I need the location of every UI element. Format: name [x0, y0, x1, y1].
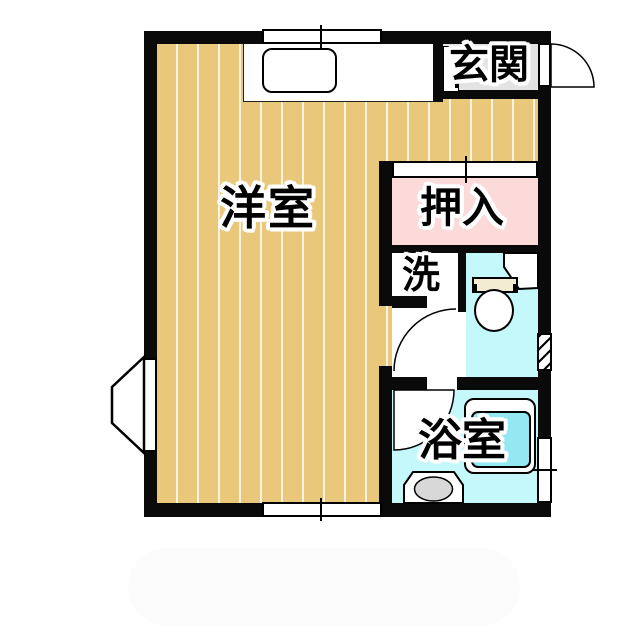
window-bathroom-tick: [531, 469, 557, 471]
bay-window: [112, 357, 144, 453]
window-bottom: [262, 502, 382, 517]
background-watermark: [128, 548, 520, 626]
window-bottom-tick: [320, 498, 322, 521]
window-top: [262, 29, 382, 44]
toilet-bowl: [474, 289, 514, 332]
room-label-west-room: 洋室: [220, 185, 316, 231]
bathroom-doorway: [426, 377, 458, 390]
room-label-bathroom: 浴室: [418, 419, 506, 463]
wall-toilet-left: [458, 253, 466, 312]
wall-washroom-inner: [392, 296, 427, 308]
kitchen-sink: [262, 48, 337, 93]
sliding-closet-door-tick: [465, 156, 467, 183]
wall-closet-bottom: [379, 245, 538, 253]
wall-bathroom-top: [379, 377, 538, 390]
entrance-door-leaf: [538, 43, 551, 87]
floor-plan: 玄関 洋室 押入 洗 浴室: [0, 0, 640, 640]
wall-genkan-left: [433, 44, 443, 102]
toilet-tank-fitting-right: [513, 284, 518, 292]
toilet-tank-fitting-left: [472, 284, 477, 292]
window-top-tick: [320, 25, 322, 48]
room-label-closet: 押入: [420, 187, 504, 229]
wall-partition-upper: [379, 161, 392, 306]
entrance-door-swing: [551, 44, 594, 87]
vent-hatch: [537, 333, 552, 371]
room-label-genkan: 玄関: [449, 45, 529, 85]
bay-window-wall-band: [143, 358, 157, 452]
room-label-washroom: 洗: [402, 256, 440, 294]
